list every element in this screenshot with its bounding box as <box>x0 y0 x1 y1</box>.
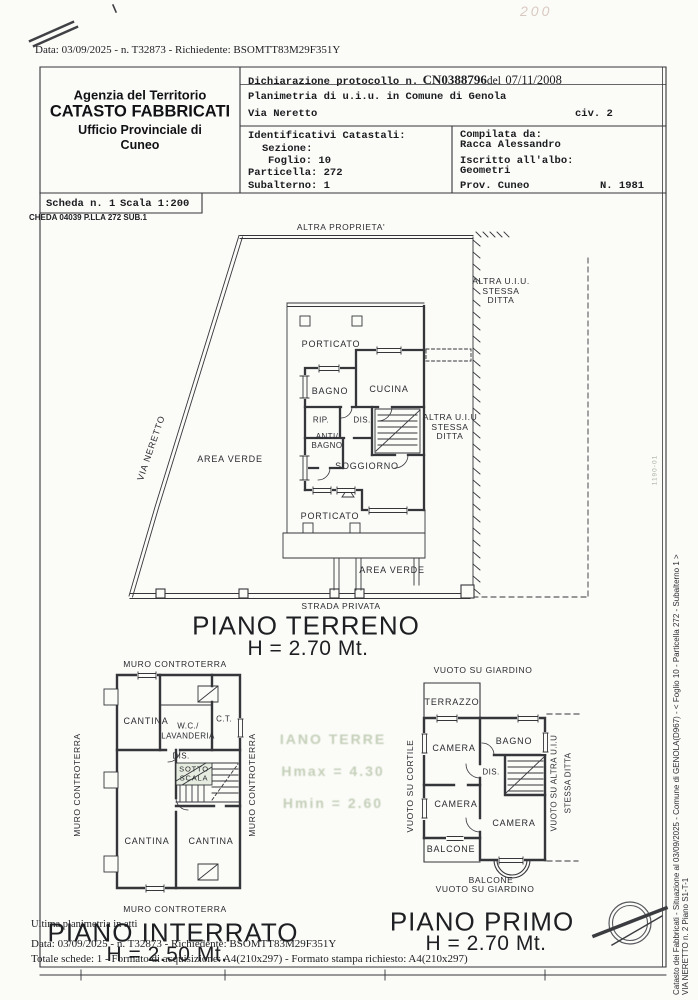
terrazzo-label: TERRAZZO <box>425 697 480 707</box>
scheda-label: Scheda n. 1 <box>46 198 115 210</box>
protocol-number: CN0388796 <box>423 72 487 87</box>
albo-value: Geometri <box>460 165 510 177</box>
porticato-sud-label: PORTICATO <box>301 511 360 521</box>
declaration-line: Dichiarazione protocollo n. CN0388796del… <box>248 71 562 89</box>
planimetria-line: Planimetria di u.i.u. in Comune di Genol… <box>248 91 506 103</box>
scan-header-line: Data: 03/09/2025 - n. T32873 - Richieden… <box>35 44 340 56</box>
bagno-label: BAGNO <box>312 386 349 396</box>
cadastral-particella: Particella: 272 <box>248 167 343 179</box>
dis-label: DIS. <box>353 416 370 425</box>
scala-label: Scala 1:200 <box>120 198 189 210</box>
balcone-ovest-label: BALCONE <box>427 844 476 854</box>
footer-totale-line: Totale schede: 1 - Formato di acquisizio… <box>31 953 468 965</box>
stamp-circle-mark <box>594 902 666 945</box>
cantina-ovest-label: CANTINA <box>124 836 169 846</box>
soggiorno-label: SOGGIORNO <box>335 461 399 471</box>
protocol-date: 07/11/2008 <box>505 73 561 87</box>
plan-svg <box>0 0 698 1000</box>
rip-label: RIP. <box>313 416 329 425</box>
camera-nordovest-label: CAMERA <box>432 743 475 753</box>
cadastral-sezione: Sezione: <box>262 143 312 155</box>
muro-sud-label: MURO CONTROTERRA <box>123 904 227 914</box>
side-margin-line-1: Catasto dei Fabbricati - Situazione al 0… <box>672 433 681 995</box>
ct-label: C.T. <box>216 715 232 724</box>
muro-ovest-label: MURO CONTROTERRA <box>72 733 82 837</box>
sheet-code: CHEDA 04039 P.LLA 272 SUB.1 <box>29 213 147 222</box>
vuoto-cortile-label: VUOTO SU CORTILE <box>405 740 415 833</box>
agency-office: CATASTO FABBRICATI <box>50 103 230 122</box>
civic-number: civ. 2 <box>575 108 613 120</box>
sottoscala-label: SOTTO SCALA <box>179 766 209 783</box>
muro-est-label: MURO CONTROTERRA <box>247 733 257 837</box>
ghost-code: 1190-01 <box>652 455 659 485</box>
area-verde-bottom-label: AREA VERDE <box>359 565 425 575</box>
altra-uiu-e-label: ALTRA U.I.U STESSA DITTA <box>423 413 478 442</box>
cantina-est-label: CANTINA <box>188 836 233 846</box>
porticato-nord-label: PORTICATO <box>302 339 361 349</box>
ff-dis-label: DIS. <box>482 768 499 777</box>
ghost-line-2: Hmax = 4.30 <box>281 763 384 779</box>
muro-nord-label: MURO CONTROTERRA <box>123 659 227 669</box>
cadastral-foglio: Foglio: 10 <box>268 155 331 167</box>
agency-province-2: Cuneo <box>121 138 160 152</box>
basement-dis-label: DIS. <box>172 752 189 761</box>
ff-bagno-label: BAGNO <box>496 736 533 746</box>
vuoto-altra-uiu-label: VUOTO SU ALTRA U.I.U <box>550 735 559 832</box>
declaration-prefix: Dichiarazione protocollo n. <box>248 76 418 88</box>
side-margin-text: Catasto dei Fabbricati - Situazione al 0… <box>672 433 690 995</box>
street-name: Via Neretto <box>248 108 317 120</box>
ghost-bleedthrough-text: IANO TERRE Hmax = 4.30 Hmin = 2.60 <box>280 715 386 811</box>
camera-sudest-label: CAMERA <box>492 818 535 828</box>
ground-floor-height: H = 2.70 Mt. <box>248 637 369 661</box>
footer-ultima: Ultima planimetria in atti <box>31 919 137 930</box>
side-margin-line-2: VIA NERETTO n. 2 Piano S1-T-1 <box>681 433 690 995</box>
ghost-line-3: Hmin = 2.60 <box>283 795 383 811</box>
compiler-name: Racca Alessandro <box>460 139 561 151</box>
vuoto-giardino-nord-label: VUOTO SU GIARDINO <box>434 665 533 675</box>
stessa-ditta-label: STESSA DITTA <box>564 753 573 814</box>
antibagno-label: ANTI/ BAGNO <box>312 432 343 450</box>
agency-province-1: Ufficio Provinciale di <box>78 123 202 137</box>
ghost-line-1: IANO TERRE <box>280 731 386 747</box>
albo-number: N. 1981 <box>600 180 644 192</box>
cadastral-title: Identificativi Catastali: <box>248 130 406 142</box>
vuoto-giardino-sud-label: VUOTO SU GIARDINO <box>436 884 535 894</box>
agency-name: Agenzia del Territorio <box>74 88 207 103</box>
compiler-prov: Prov. Cuneo <box>460 180 529 192</box>
balcone-sud-label: BALCONE <box>469 875 514 885</box>
altra-uiu-ne-label: ALTRA U.I.U. STESSA DITTA <box>472 277 530 306</box>
wc-lavanderia-label: W.C./ LAVANDERIA <box>161 722 215 741</box>
pen-mark <box>30 5 116 46</box>
cadastral-subalterno: Subalterno: 1 <box>248 180 330 192</box>
protocol-del: del <box>487 75 501 87</box>
altra-proprieta-label: ALTRA PROPRIETA' <box>297 222 385 232</box>
handwritten-note: 200 <box>520 3 552 19</box>
strada-privata-label: STRADA PRIVATA <box>301 601 380 611</box>
basement-plan <box>104 672 244 893</box>
cucina-label: CUCINA <box>369 384 408 394</box>
footer-data-line: Data: 03/09/2025 - n. T32873 - Richieden… <box>31 938 336 950</box>
area-verde-left-label: AREA VERDE <box>197 454 263 464</box>
camera-ovest-label: CAMERA <box>434 799 477 809</box>
scanned-cadastral-sheet: Data: 03/09/2025 - n. T32873 - Richieden… <box>0 0 698 1000</box>
